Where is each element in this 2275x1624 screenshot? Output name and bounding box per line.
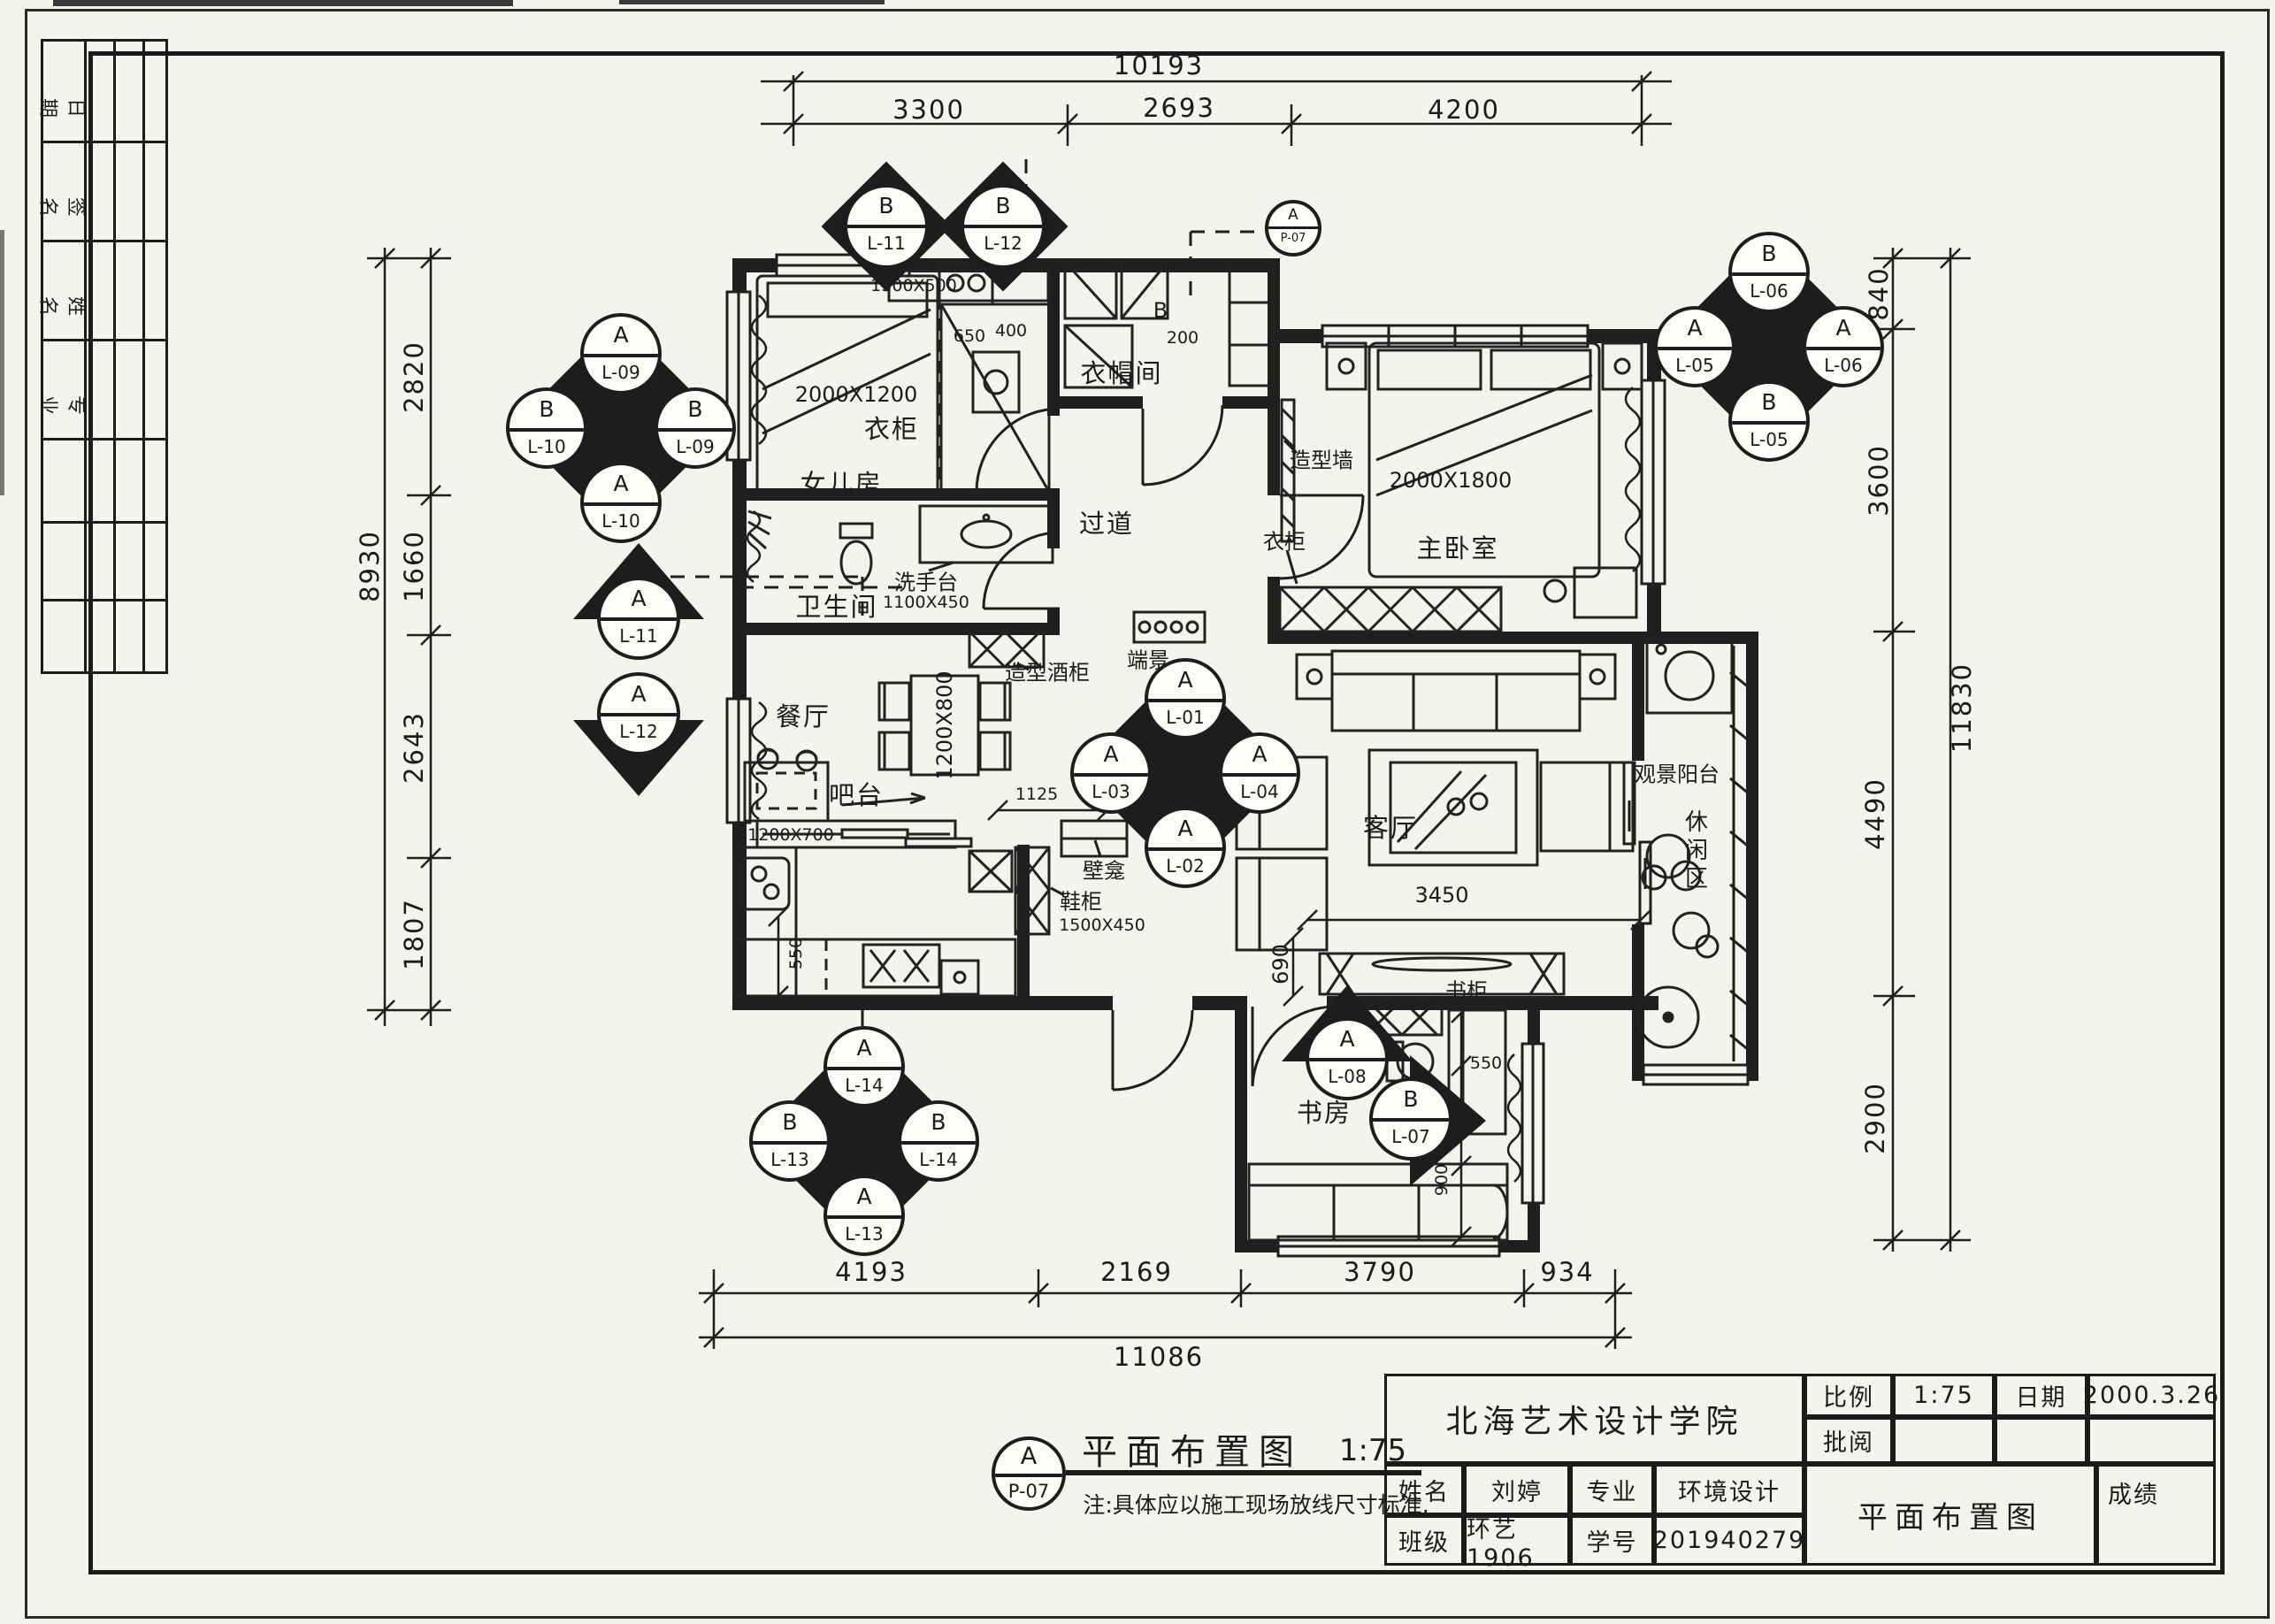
plant (1674, 913, 1709, 948)
marker-L07: BL-07 (1353, 1054, 1486, 1187)
dressing-table (1574, 568, 1636, 617)
size-shoe-cabinet: 1500X450 (1059, 915, 1145, 935)
review-cell-empty (1995, 1417, 2087, 1464)
marker-pair-L11-L12: BL-11 BL-12 (831, 161, 1054, 292)
marker-circle: AL-09 (580, 313, 662, 395)
basin-label: 洗手台 (894, 565, 958, 596)
marker-circle: BL-07 (1369, 1077, 1452, 1161)
dim-closet-200: 200 (1167, 328, 1199, 348)
major-value: 环境设计 (1654, 1464, 1804, 1515)
student-id-value: 201940279 (1654, 1515, 1804, 1566)
marker-L12: AL-12 (572, 656, 705, 789)
sofa (1332, 651, 1580, 731)
room-living: 客厅 (1363, 808, 1418, 845)
sink (741, 858, 789, 909)
cloak-b-mark: B (1153, 298, 1168, 323)
marker-circle: AL-05 (1654, 306, 1735, 387)
console-table (1134, 612, 1205, 642)
dim-top-seg: 3300 (892, 95, 965, 125)
marker-circle: BL-12 (961, 184, 1046, 269)
major-label: 专业 (1570, 1464, 1654, 1515)
dim-right-overall: 11830 (1947, 663, 1977, 753)
grade-label: 成绩 (2096, 1464, 2216, 1566)
drawing-title: 平面布置图 (1804, 1464, 2096, 1566)
washing-machine (1647, 639, 1732, 713)
dim-right-seg: 4490 (1860, 778, 1890, 850)
marker-cluster-L13-L14: AL-14 BL-13 BL-14 AL-13 (747, 1024, 977, 1254)
marker-circle: BL-11 (844, 184, 929, 269)
dim-right-seg: 2900 (1860, 1082, 1890, 1154)
marker-circle: AL-02 (1145, 807, 1226, 888)
marker-circle: AL-03 (1070, 732, 1152, 814)
dim-left-seg: 1807 (399, 898, 429, 970)
dim-top-overall: 10193 (1114, 50, 1204, 80)
marker-cluster-L09-L10: AL-09 BL-10 BL-09 AL-10 (504, 311, 734, 541)
dim-bottom-overall: 11086 (1114, 1342, 1204, 1372)
marker-circle: BL-05 (1728, 380, 1810, 462)
size-basin: 1100X450 (883, 593, 969, 612)
marker-circle: BL-09 (655, 387, 736, 469)
size-daughter-bed: 2000X1200 (795, 382, 918, 407)
legend-underline (1066, 1470, 1421, 1475)
marker-circle: AL-14 (823, 1026, 905, 1107)
marker-circle: BL-10 (506, 387, 587, 469)
dim-closet-650: 650 (954, 326, 985, 346)
class-value: 环艺1906 (1464, 1515, 1570, 1566)
room-corridor: 过道 (1079, 503, 1134, 540)
floor-plan-sheet: { "sheet": { "side_strip": { "rows": ["日… (0, 0, 2275, 1624)
dim-top-seg: 2693 (1143, 93, 1215, 123)
marker-circle: AL-13 (823, 1175, 905, 1256)
master-wardrobe-label: 衣柜 (1263, 525, 1306, 555)
legend-title: 平面布置图 (1082, 1423, 1303, 1475)
name-label: 姓名 (1384, 1464, 1464, 1515)
leisure-label: 休闲区 (1683, 808, 1710, 893)
marker-circle: AL-10 (580, 462, 662, 543)
marker-cluster-L05-L06: BL-06 AL-05 AL-06 BL-05 (1652, 230, 1882, 460)
elevation-ref-circle: AP-07 (1265, 200, 1321, 257)
room-balcony: 观景阳台 (1635, 757, 1720, 788)
name-value: 刘婷 (1464, 1464, 1570, 1515)
marker-circle: BL-14 (898, 1100, 979, 1182)
marker-circle: AL-06 (1803, 306, 1884, 387)
dim-bottom-seg: 4193 (835, 1257, 908, 1287)
shoe-cabinet-label: 鞋柜 (1060, 885, 1102, 915)
scale-label: 比例 (1804, 1374, 1893, 1417)
dim-closet-400: 400 (995, 321, 1027, 341)
room-dining: 餐厅 (776, 696, 831, 733)
dim-left-seg: 2643 (399, 711, 429, 784)
scan-marks (0, 0, 885, 495)
dim-bottom-seg: 2169 (1100, 1257, 1173, 1287)
marker-circle: AL-12 (597, 672, 680, 755)
date-value: 2000.3.26 (2087, 1374, 2216, 1417)
legend-symbol-circle: A P-07 (992, 1436, 1066, 1511)
marker-cluster-L01-L04: AL-01 AL-03 AL-04 AL-02 (1069, 656, 1298, 886)
class-label: 班级 (1384, 1515, 1464, 1566)
bar-label: 吧台 (829, 775, 884, 812)
marker-circle: BL-06 (1728, 232, 1810, 313)
scale-value: 1:75 (1893, 1374, 1995, 1417)
school-name: 北海艺术设计学院 (1384, 1374, 1804, 1464)
review-label: 批阅 (1804, 1417, 1893, 1464)
marker-circle: AL-11 (597, 577, 680, 660)
dim-left-overall: 8930 (355, 530, 385, 602)
dim-top-seg: 4200 (1428, 95, 1500, 125)
legend-note: 注:具体应以施工现场放线尺寸标准. (1083, 1488, 1429, 1520)
marker-circle: AL-04 (1219, 732, 1300, 814)
dim-bottom-seg: 934 (1540, 1257, 1594, 1287)
date-label: 日期 (1995, 1374, 2087, 1417)
armchair (1541, 762, 1633, 851)
student-id-label: 学号 (1570, 1515, 1654, 1566)
dim-bar1: 1125 (1015, 785, 1058, 804)
room-bath: 卫生间 (795, 586, 877, 624)
size-dining-table: 1200X800 (932, 670, 957, 779)
dim-bottom-seg: 3790 (1344, 1257, 1416, 1287)
review-cell-empty (1893, 1417, 1995, 1464)
wardrobe-label: 衣柜 (864, 409, 919, 446)
room-cloak: 衣帽间 (1080, 353, 1162, 390)
room-master: 主卧室 (1416, 528, 1498, 565)
toilet-tank (840, 524, 872, 538)
dim-tv: 690 (1268, 944, 1293, 984)
dim-kitchen-550: 550 (786, 938, 806, 969)
marker-circle: BL-13 (749, 1100, 831, 1182)
dim-left-seg: 2820 (399, 341, 429, 413)
dim-living-w: 3450 (1414, 883, 1468, 908)
feature-wall-label: 造型墙 (1290, 443, 1353, 474)
size-master-bed: 2000X1800 (1390, 468, 1513, 493)
size-bar-counter: 1200X700 (747, 825, 834, 845)
marker-circle: AL-01 (1145, 658, 1226, 739)
bookcase-label: 书柜 (1445, 974, 1488, 1005)
room-daughter: 女儿房 (800, 463, 882, 501)
dim-left-seg: 1660 (399, 530, 429, 602)
review-cell-empty (2087, 1417, 2216, 1464)
